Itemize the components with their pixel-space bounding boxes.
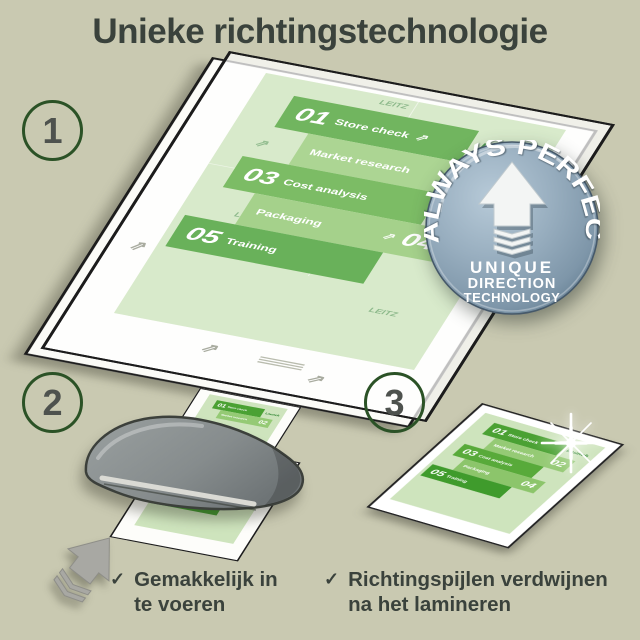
badge-line-unique: UNIQUE xyxy=(470,258,554,277)
direction-arrow-doodle: ⇗ xyxy=(302,370,330,389)
step-circle-3: 3 xyxy=(364,372,425,433)
page-title: Unieke richtingstechnologie xyxy=(0,12,640,52)
laminator-machine xyxy=(72,402,312,532)
step-circle-2: 2 xyxy=(22,372,83,433)
infographic-page: ⇗ ⇗ ⇗ Launch LEITZ LEITZ LEITZ LEITZ ⇗ ⇗… xyxy=(0,0,640,640)
check-icon: ✓ xyxy=(324,569,339,617)
caption-line: Richtingspijlen verdwijnen xyxy=(348,567,608,592)
always-perfect-badge: ALWAYS PERFECT! UNIQUE DIRECTION TECHNOL… xyxy=(424,140,600,316)
step-number: 1 xyxy=(42,110,62,152)
badge-line-technology: TECHNOLOGY xyxy=(464,290,561,305)
fineprint-lines xyxy=(256,355,305,372)
step-number: 3 xyxy=(384,382,404,424)
caption-line: na het lamineren xyxy=(348,592,608,617)
caption-arrows-disappear: ✓ Richtingspijlen verdwijnen na het lami… xyxy=(324,567,608,617)
caption-line: Gemakkelijk in xyxy=(134,567,278,592)
direction-arrow-doodle: ⇗ xyxy=(197,339,223,357)
check-icon: ✓ xyxy=(110,569,125,617)
step-number: 2 xyxy=(42,382,62,424)
caption-easy-feeding: ✓ Gemakkelijk in te voeren xyxy=(110,567,278,617)
doc-row-label: Training xyxy=(445,474,469,483)
direction-arrow-doodle: ⇗ xyxy=(127,237,150,254)
doc-row-number: 04 xyxy=(518,480,538,490)
caption-line: te voeren xyxy=(134,592,278,617)
step-circle-1: 1 xyxy=(22,100,83,161)
sparkle-icon xyxy=(540,412,602,474)
